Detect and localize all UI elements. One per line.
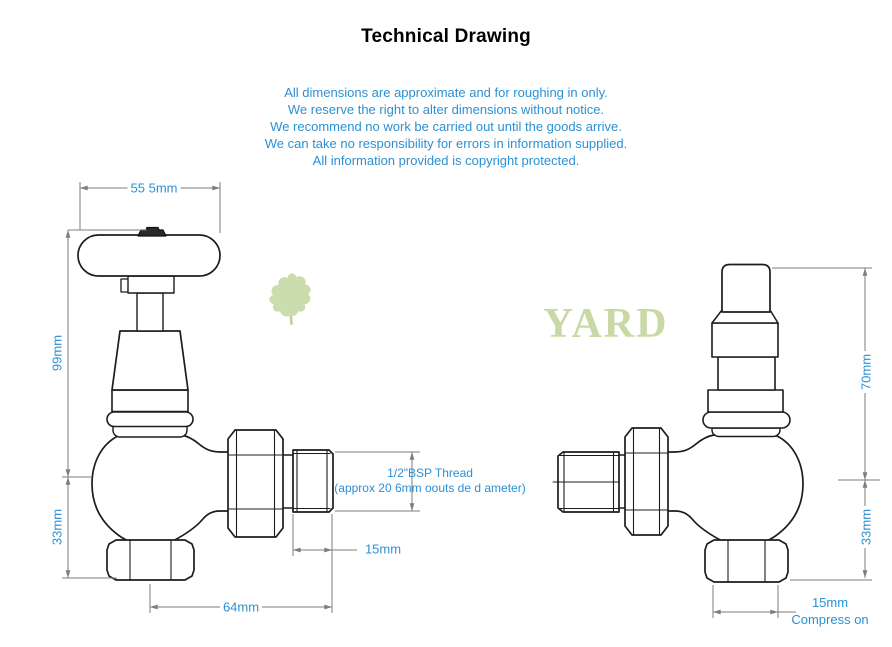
technical-drawing-svg [0, 0, 892, 647]
dim-label-handle-width: 55 5mm [128, 181, 181, 196]
thread-note: 1/2"BSP Thread (approx 20 6mm oouts de d… [334, 466, 525, 496]
brand-watermark: YARD [543, 303, 668, 345]
technical-drawing-page: Technical Drawing All dimensions are app… [0, 0, 892, 647]
thread-note-line: (approx 20 6mm oouts de d ameter) [334, 481, 525, 496]
oak-leaf-icon [269, 273, 310, 324]
dim-label-height-upper-right: 70mm [859, 351, 874, 393]
compression-note: 15mm Compress on [791, 594, 868, 628]
compression-size: 15mm [791, 594, 868, 611]
thread-note-line: 1/2"BSP Thread [334, 466, 525, 481]
compression-label: Compress on [791, 611, 868, 628]
dim-label-height-lower-left: 33mm [50, 506, 65, 548]
dim-label-overall-length: 64mm [220, 600, 262, 615]
dim-label-height-upper-left: 99mm [50, 332, 65, 374]
dim-label-height-lower-right: 33mm [859, 506, 874, 548]
dim-label-thread-length: 15mm [362, 542, 404, 557]
